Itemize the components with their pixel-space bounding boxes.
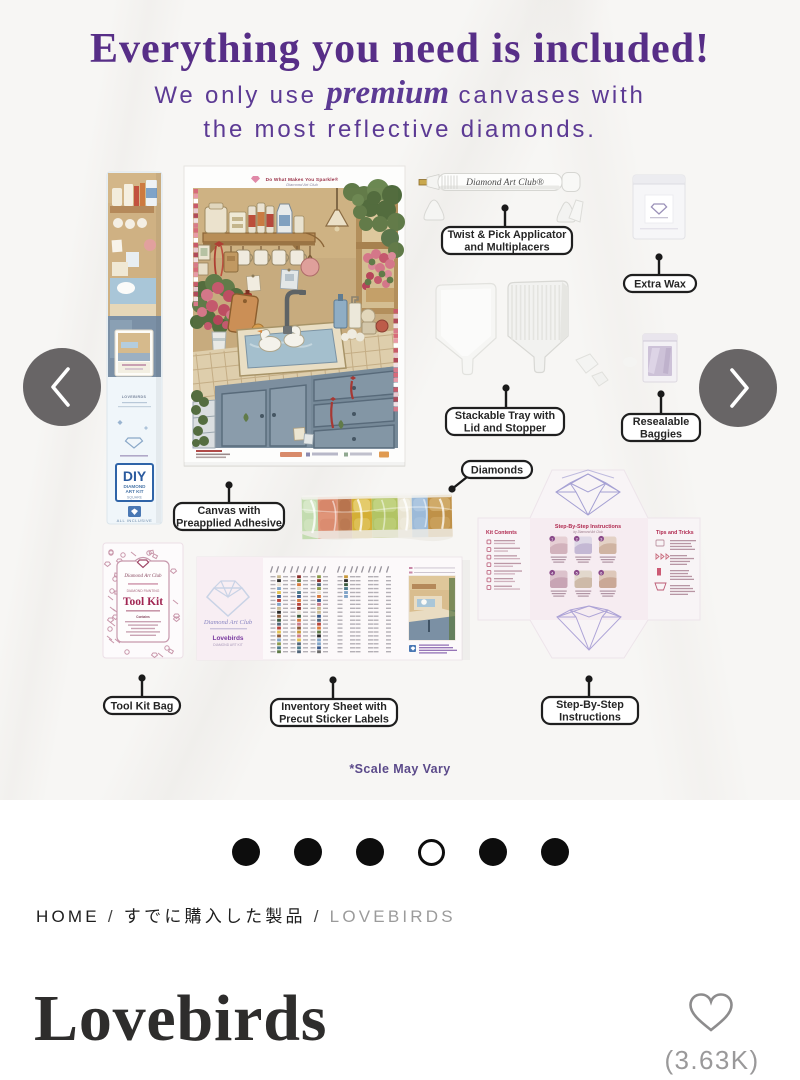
svg-text:by Diamond Art Club: by Diamond Art Club (573, 530, 603, 534)
svg-text:Tool Kit Bag: Tool Kit Bag (111, 701, 174, 713)
svg-text:Baggies: Baggies (640, 429, 682, 441)
svg-text:and Multiplacers: and Multiplacers (464, 242, 549, 254)
svg-text:Inventory Sheet with: Inventory Sheet with (281, 701, 387, 713)
svg-text:Extra Wax: Extra Wax (634, 279, 686, 291)
svg-text:DIAMOND ART KIT: DIAMOND ART KIT (213, 643, 243, 647)
svg-text:Tool Kit: Tool Kit (123, 596, 163, 608)
svg-text:DIAMOND PAINTING: DIAMOND PAINTING (127, 589, 160, 593)
svg-text:SQUARE: SQUARE (127, 496, 143, 500)
svg-text:Diamond Art Club®: Diamond Art Club® (465, 177, 544, 188)
svg-text:Diamonds: Diamonds (471, 465, 523, 477)
svg-text:Contains: Contains (136, 615, 150, 619)
svg-text:Diamond Art Club: Diamond Art Club (203, 619, 253, 626)
svg-text:Preapplied Adhesive: Preapplied Adhesive (176, 518, 282, 530)
svg-text:LOVEBIRDS: LOVEBIRDS (122, 395, 147, 399)
svg-text:Resealable: Resealable (633, 416, 689, 428)
svg-text:Twist & Pick Applicator: Twist & Pick Applicator (448, 229, 568, 241)
svg-text:Lid and Stopper: Lid and Stopper (464, 423, 547, 435)
svg-text:Instructions: Instructions (559, 712, 621, 724)
svg-text:Lovebirds: Lovebirds (212, 635, 243, 642)
svg-text:ART KIT: ART KIT (125, 489, 143, 494)
svg-text:Precut Sticker Labels: Precut Sticker Labels (279, 714, 389, 726)
svg-text:Diamond Art Club: Diamond Art Club (123, 574, 162, 579)
svg-text:Stackable Tray with: Stackable Tray with (455, 410, 555, 422)
svg-text:Canvas with: Canvas with (198, 505, 261, 517)
svg-text:Diamond Art Club: Diamond Art Club (286, 182, 318, 187)
svg-text:Step-By-Step: Step-By-Step (556, 699, 624, 711)
svg-text:DIY: DIY (123, 468, 147, 484)
svg-text:Kit Contents: Kit Contents (486, 530, 517, 536)
svg-text:Tips and Tricks: Tips and Tricks (656, 530, 694, 536)
svg-text:ALL INCLUSIVE: ALL INCLUSIVE (117, 518, 153, 523)
